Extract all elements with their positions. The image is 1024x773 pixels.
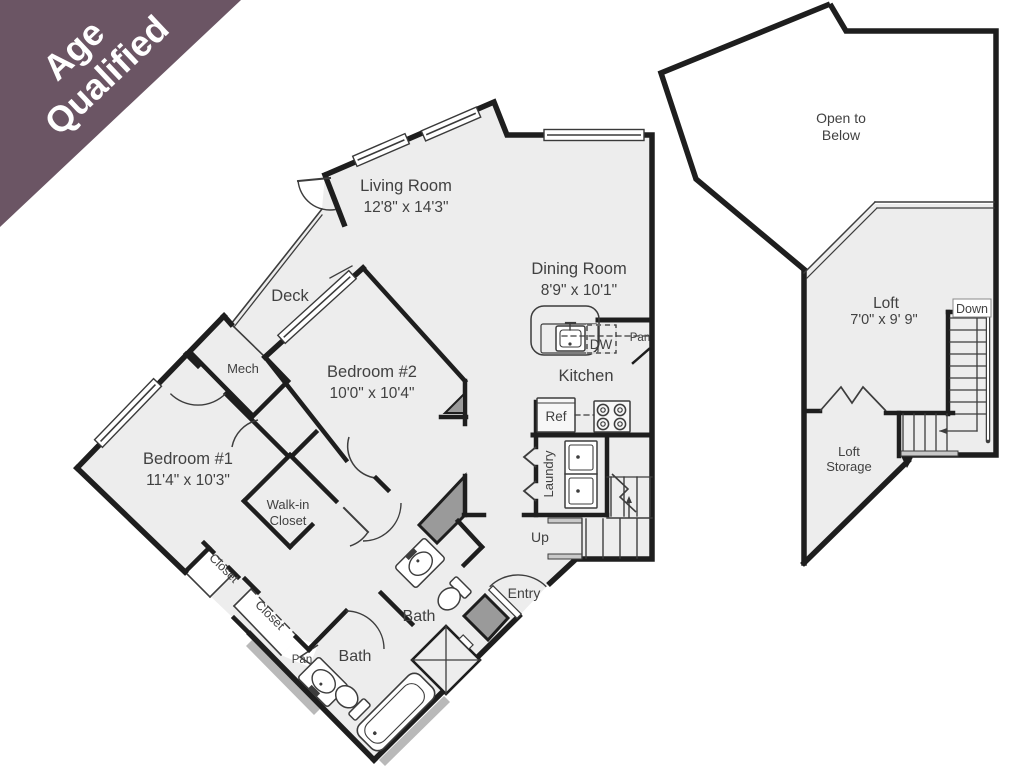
svg-text:11'4" x 10'3": 11'4" x 10'3" bbox=[146, 472, 230, 489]
svg-text:Bath: Bath bbox=[339, 648, 372, 665]
svg-text:Loft: Loft bbox=[873, 295, 900, 312]
svg-text:8'9" x 10'1": 8'9" x 10'1" bbox=[541, 282, 617, 299]
svg-text:Bedroom #2: Bedroom #2 bbox=[327, 363, 417, 381]
svg-text:Storage: Storage bbox=[826, 459, 872, 474]
svg-text:DW: DW bbox=[590, 337, 613, 352]
svg-text:Ref: Ref bbox=[545, 409, 566, 424]
svg-text:Bedroom #1: Bedroom #1 bbox=[143, 450, 233, 468]
svg-text:Below: Below bbox=[822, 127, 861, 143]
svg-text:Open to: Open to bbox=[816, 110, 866, 126]
svg-text:Kitchen: Kitchen bbox=[558, 367, 613, 385]
svg-text:Loft: Loft bbox=[838, 444, 860, 459]
svg-text:12'8" x 14'3": 12'8" x 14'3" bbox=[363, 199, 448, 216]
svg-text:Entry: Entry bbox=[508, 585, 541, 601]
svg-text:Mech: Mech bbox=[227, 361, 259, 376]
svg-text:Dining Room: Dining Room bbox=[531, 260, 626, 278]
svg-text:Closet: Closet bbox=[270, 513, 307, 528]
svg-text:7'0" x 9' 9": 7'0" x 9' 9" bbox=[850, 312, 917, 328]
svg-text:Down: Down bbox=[956, 302, 988, 316]
svg-text:10'0" x 10'4": 10'0" x 10'4" bbox=[329, 385, 414, 402]
svg-text:Deck: Deck bbox=[271, 287, 309, 305]
svg-text:Pan: Pan bbox=[292, 654, 312, 666]
svg-text:Living Room: Living Room bbox=[360, 177, 452, 195]
svg-text:Bath: Bath bbox=[403, 608, 436, 625]
svg-text:Walk-in: Walk-in bbox=[267, 497, 310, 512]
svg-text:Pan: Pan bbox=[630, 332, 650, 344]
svg-text:Laundry: Laundry bbox=[541, 450, 556, 497]
svg-text:Up: Up bbox=[531, 529, 549, 545]
